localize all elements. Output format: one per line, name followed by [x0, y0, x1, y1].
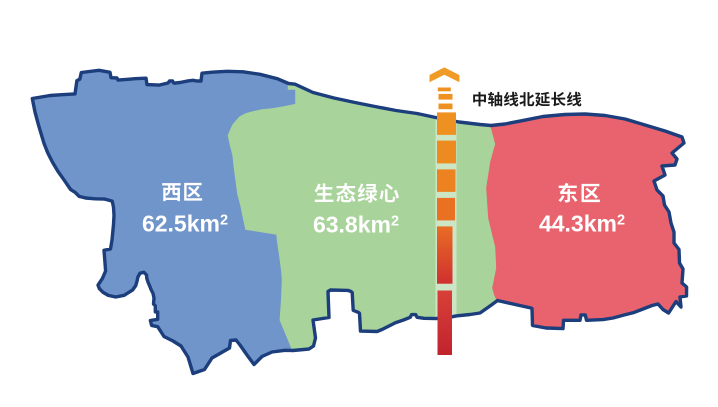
svg-text:44.3km2: 44.3km2: [539, 211, 625, 237]
svg-text:63.8km2: 63.8km2: [313, 212, 399, 238]
svg-text:62.5km2: 62.5km2: [142, 211, 228, 237]
